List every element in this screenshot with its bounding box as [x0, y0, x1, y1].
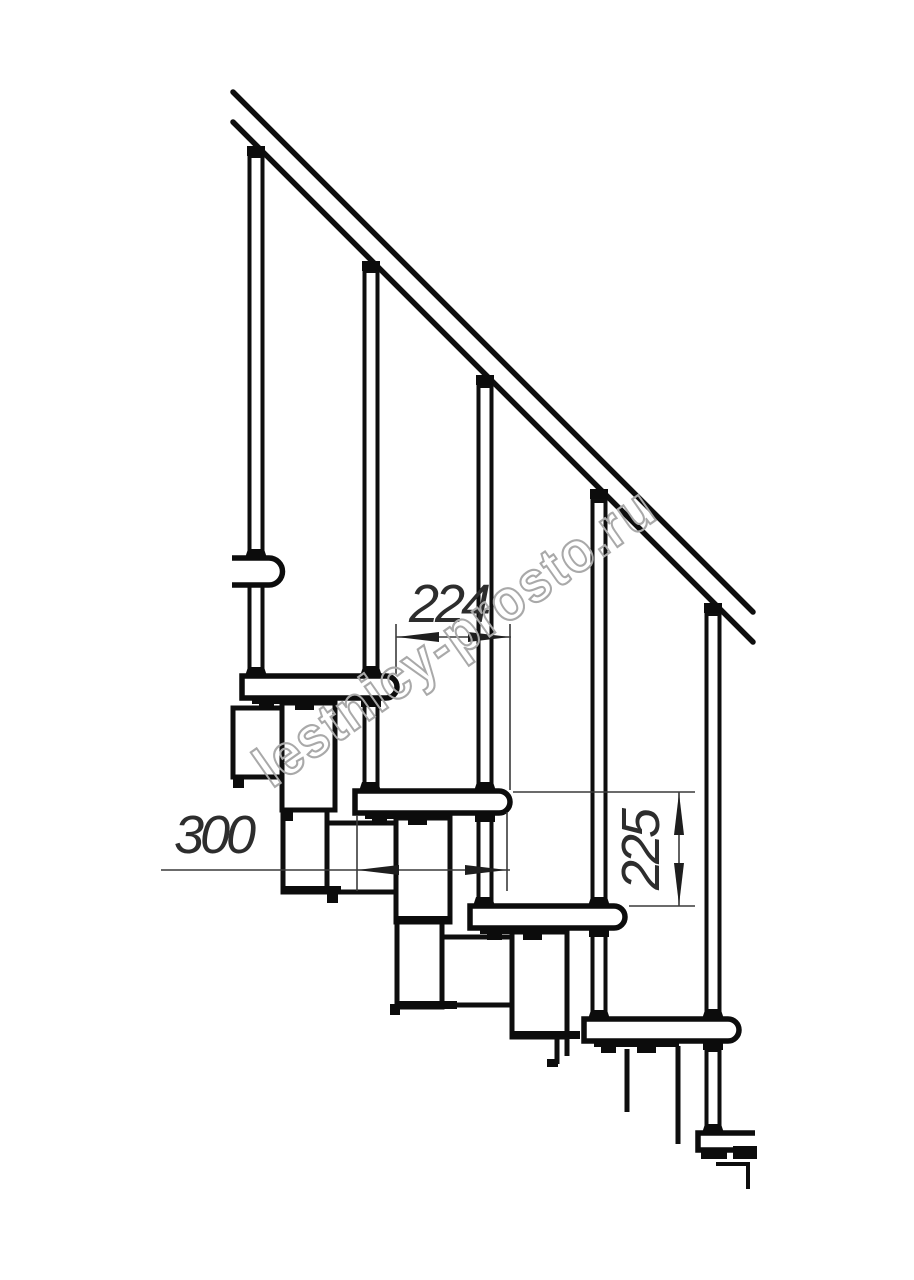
baluster-nub [703, 1041, 723, 1050]
baluster-5-upper [707, 614, 720, 1011]
baluster-foot [702, 1124, 724, 1133]
stringer-block [442, 937, 517, 1005]
dimension-label-300: 300 [174, 805, 256, 865]
stringer-base-edge [394, 916, 452, 924]
baluster-foot [359, 782, 381, 791]
rail-cap [704, 603, 722, 613]
rail-cap [247, 146, 265, 156]
rail-cap [476, 375, 494, 385]
rail-cap [362, 261, 380, 271]
baluster-3-lower [479, 820, 492, 901]
technical-drawing-page: 224 300 225 lestnicy-prosto.ru [0, 0, 914, 1280]
baluster-foot [245, 667, 267, 676]
stringer-base-edge [395, 1001, 457, 1009]
tread-3 [470, 906, 625, 928]
stringer-foot [390, 1004, 400, 1015]
baluster-1-upper [250, 156, 263, 552]
tread-2 [355, 791, 510, 813]
stringer-block [512, 932, 567, 1037]
stringer-foot [233, 775, 244, 788]
baluster-foot [588, 1010, 610, 1019]
staircase-technical-drawing: 224 300 225 lestnicy-prosto.ru [0, 0, 914, 1280]
stringer-block [283, 810, 327, 892]
bottom-step-lip [733, 1146, 757, 1159]
baluster-clamp [245, 549, 267, 558]
baluster-5-lower [707, 1050, 720, 1126]
baluster-nub [475, 813, 495, 822]
stringer-foot [327, 890, 338, 903]
bottom-step-lip [701, 1148, 727, 1159]
dimension-label-225: 225 [611, 807, 671, 891]
baluster-4-lower [593, 935, 606, 1016]
bottom-step-edge [716, 1164, 748, 1189]
stringer-block [327, 823, 402, 892]
baluster-foot [473, 897, 495, 906]
tread-lip [594, 1039, 679, 1053]
tread-bottom-landing [698, 1133, 757, 1189]
baluster-nub [589, 928, 609, 937]
baluster-clamp [474, 782, 496, 791]
tread-4 [584, 1019, 739, 1041]
baluster-clamp [588, 897, 610, 906]
tread-upper-cropped [232, 558, 283, 585]
stringer-block [397, 922, 442, 1007]
arrowhead-down [674, 863, 684, 905]
baluster-1-lower [250, 585, 263, 669]
arrowhead-up [674, 793, 684, 835]
baluster-2-upper [365, 271, 378, 668]
stringer-foot [282, 808, 293, 821]
baluster-clamp [702, 1010, 724, 1019]
